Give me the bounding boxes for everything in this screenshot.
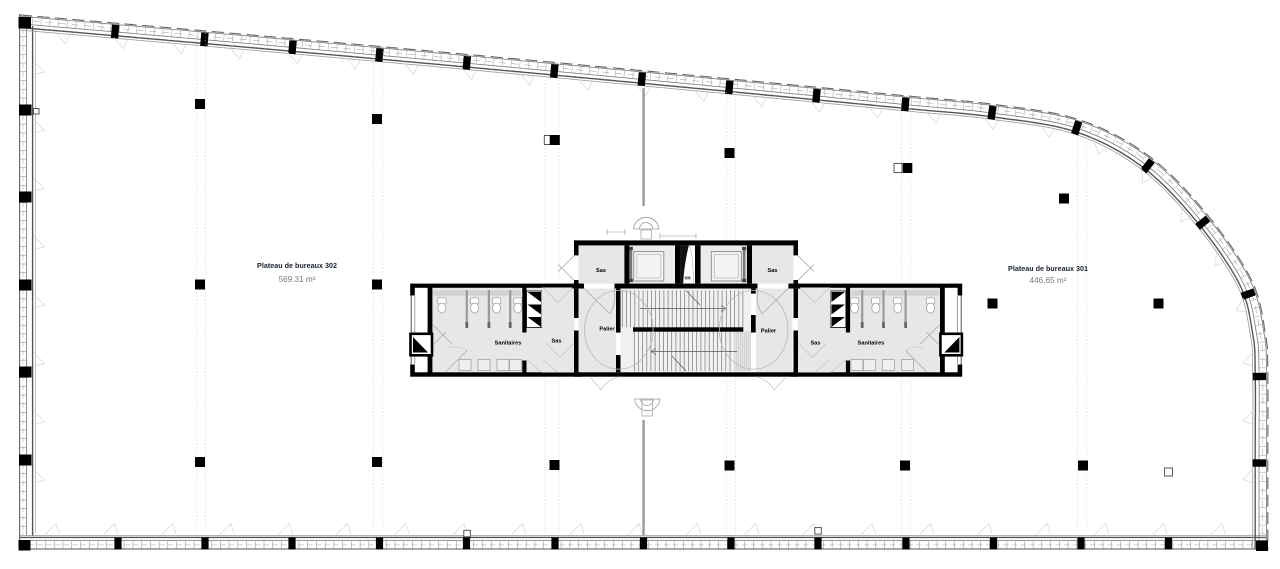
- svg-text:Sanitaires: Sanitaires: [495, 341, 522, 347]
- svg-text:Sas: Sas: [596, 268, 606, 274]
- svg-text:Plateau de bureaux 302: Plateau de bureaux 302: [257, 261, 337, 270]
- svg-text:Sas: Sas: [811, 341, 821, 347]
- svg-text:Palier: Palier: [761, 329, 777, 335]
- svg-text:Sanitaires: Sanitaires: [858, 341, 885, 347]
- svg-text:Palier: Palier: [599, 327, 615, 333]
- svg-text:VH: VH: [684, 276, 690, 281]
- svg-text:446.65 m²: 446.65 m²: [1030, 276, 1067, 285]
- svg-text:569.31 m²: 569.31 m²: [279, 275, 316, 284]
- svg-text:Plateau de bureaux 301: Plateau de bureaux 301: [1008, 264, 1088, 273]
- svg-text:Sas: Sas: [768, 268, 778, 274]
- svg-text:Sas: Sas: [552, 339, 562, 345]
